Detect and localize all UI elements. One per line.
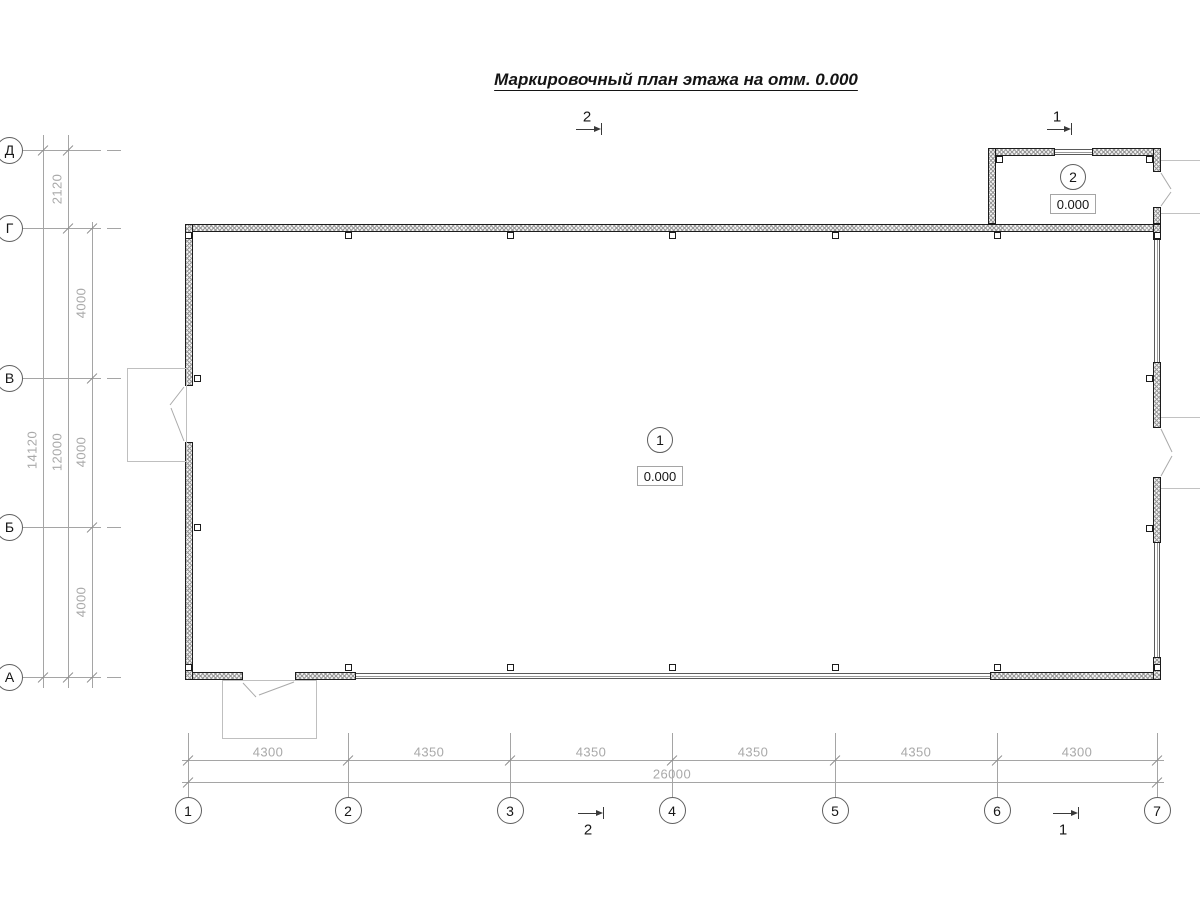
dim-text-left-seg-3: 4000	[74, 587, 89, 618]
row-axis-dash	[107, 150, 121, 151]
col-axis-bubble-2: 2	[335, 797, 362, 824]
dim-line-bottom-total	[182, 782, 1164, 783]
column-marker-square	[1154, 232, 1161, 239]
column-marker-square	[832, 232, 839, 239]
column-marker-square	[185, 664, 192, 671]
col-axis-bubble-1: 1	[175, 797, 202, 824]
row-axis-bubble-0: Д	[0, 137, 23, 164]
column-marker-square	[1154, 664, 1161, 671]
column-marker-square	[1146, 525, 1153, 532]
col-axis-line	[348, 733, 349, 797]
col-axis-bubble-5: 5	[822, 797, 849, 824]
column-marker-square	[832, 664, 839, 671]
dim-line-left-segments	[92, 222, 93, 688]
column-marker-square	[669, 232, 676, 239]
row-axis-bubble-3: Б	[0, 514, 23, 541]
row-axis-bubble-1: Г	[0, 215, 23, 242]
row-axis-bubble-4: А	[0, 664, 23, 691]
dim-text-bottom-seg-2: 4350	[576, 745, 607, 760]
column-marker-square	[194, 375, 201, 382]
column-marker-square	[1146, 156, 1153, 163]
dim-line-left-inner	[68, 135, 69, 688]
dim-text-left-seg-1: 4000	[74, 288, 89, 319]
col-axis-bubble-6: 6	[984, 797, 1011, 824]
column-marker-square	[994, 232, 1001, 239]
col-axis-line	[1157, 733, 1158, 797]
dim-text-bottom-seg-5: 4300	[1062, 745, 1093, 760]
dim-text-left-seg-2: 4000	[74, 437, 89, 468]
dim-line-left-total	[43, 135, 44, 688]
col-axis-bubble-7: 7	[1144, 797, 1171, 824]
col-axis-bubble-4: 4	[659, 797, 686, 824]
row-axis-dash	[107, 677, 121, 678]
dim-text-left-inner-total: 12000	[50, 433, 65, 471]
col-axis-line	[672, 733, 673, 797]
column-marker-square	[507, 664, 514, 671]
dim-text-bottom-seg-4: 4350	[901, 745, 932, 760]
dim-text-bottom-seg-3: 4350	[738, 745, 769, 760]
row-axis-dash	[107, 527, 121, 528]
door-swing-lines	[0, 0, 1200, 900]
room-number-bubble: 2	[1060, 164, 1086, 190]
col-axis-line	[188, 733, 189, 797]
dim-text-bottom-seg-0: 4300	[253, 745, 284, 760]
row-axis-dash	[107, 228, 121, 229]
column-marker-square	[669, 664, 676, 671]
row-axis-bubble-2: В	[0, 365, 23, 392]
elevation-label: 0.000	[637, 466, 683, 486]
col-axis-bubble-3: 3	[497, 797, 524, 824]
col-axis-line	[510, 733, 511, 797]
column-marker-square	[345, 232, 352, 239]
column-marker-square	[345, 664, 352, 671]
column-marker-square	[194, 524, 201, 531]
elevation-label: 0.000	[1050, 194, 1096, 214]
dim-text-bottom-seg-1: 4350	[414, 745, 445, 760]
column-marker-square	[507, 232, 514, 239]
dim-text-left-total: 14120	[25, 431, 40, 469]
col-axis-line	[997, 733, 998, 797]
row-axis-dash	[107, 378, 121, 379]
column-marker-square	[996, 156, 1003, 163]
dim-text-bottom-total: 26000	[653, 767, 691, 782]
dim-text-left-seg-0: 2120	[50, 174, 65, 205]
row-axis-line	[23, 150, 101, 151]
column-marker-square	[1146, 375, 1153, 382]
col-axis-line	[835, 733, 836, 797]
room-number-bubble: 1	[647, 427, 673, 453]
column-marker-square	[994, 664, 1001, 671]
floor-plan-drawing: Маркировочный план этажа на отм. 0.000 2…	[0, 0, 1200, 900]
column-marker-square	[185, 232, 192, 239]
